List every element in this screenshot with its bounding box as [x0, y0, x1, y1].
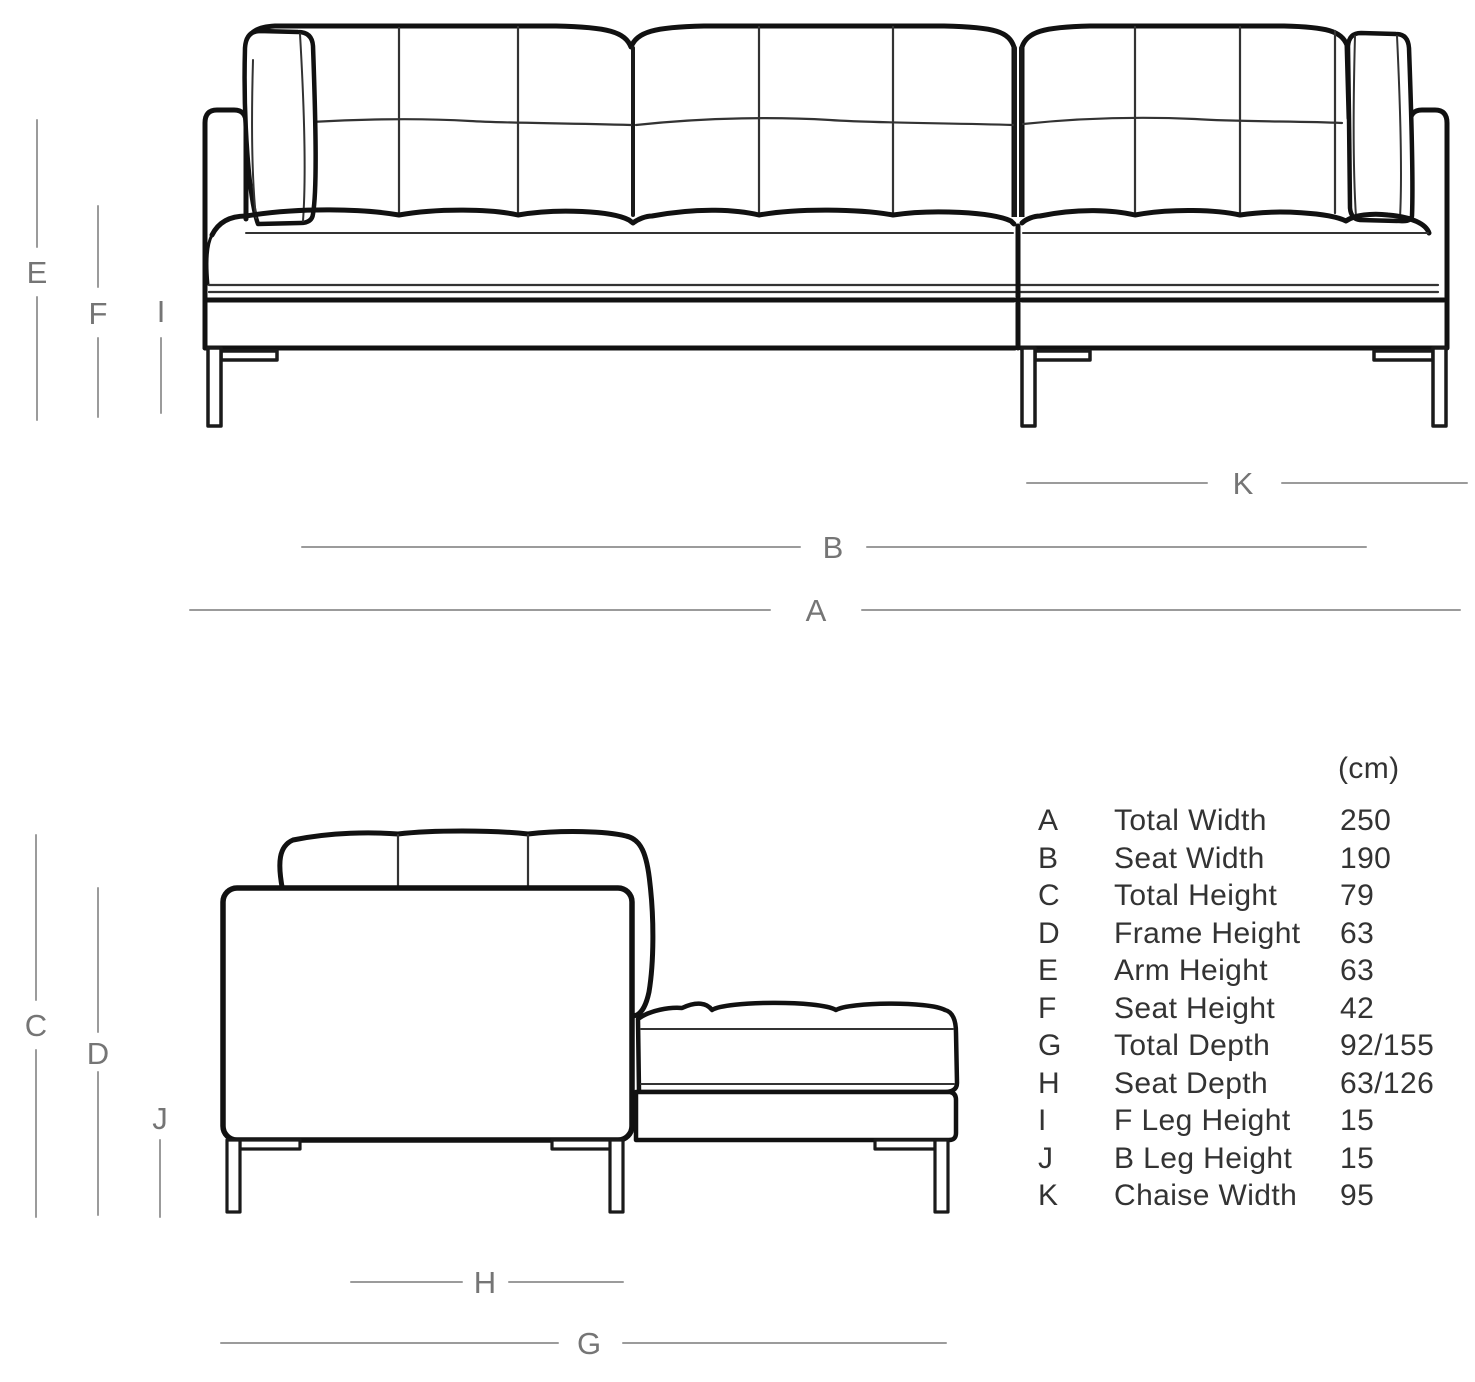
dimension-label-E: E [27, 255, 48, 290]
row-letter: C [1038, 877, 1114, 915]
row-letter: A [1038, 802, 1114, 840]
row-value: 63 [1340, 915, 1374, 953]
row-name: Total Width [1114, 802, 1340, 840]
row-letter: F [1038, 990, 1114, 1028]
table-row: F Seat Height 42 [1038, 990, 1434, 1028]
row-value: 63 [1340, 952, 1374, 990]
row-name: Seat Width [1114, 840, 1340, 878]
row-letter: I [1038, 1102, 1114, 1140]
dimension-label-A: A [806, 593, 827, 628]
table-row: A Total Width 250 [1038, 802, 1434, 840]
front-right-pillow [1348, 33, 1412, 221]
front-chaise-left-leg-bracket [1035, 351, 1090, 360]
side-back-leg-bracket [240, 1140, 300, 1149]
table-row: H Seat Depth 63/126 [1038, 1065, 1434, 1103]
front-back-outline [246, 26, 1349, 222]
dimensions-table: (cm) A Total Width 250 B Seat Width 190 … [1038, 750, 1434, 1215]
front-chaise-right-leg-bracket [1374, 351, 1433, 360]
dimension-label-B: B [823, 530, 844, 565]
row-value: 79 [1340, 877, 1374, 915]
sofa-dimension-diagram: E F I K B A C D J H G (cm) A Total Width… [0, 0, 1475, 1382]
front-chaise-left-leg [1022, 348, 1035, 426]
side-body-panel [223, 888, 632, 1140]
dimension-label-F: F [89, 296, 108, 331]
table-row: B Seat Width 190 [1038, 840, 1434, 878]
row-value: 250 [1340, 802, 1391, 840]
front-left-leg [208, 348, 221, 426]
row-letter: E [1038, 952, 1114, 990]
row-name: Total Height [1114, 877, 1340, 915]
sofa-side-view-drawing [223, 831, 957, 1212]
front-left-leg-bracket [221, 351, 277, 360]
side-front-leg-bracket [552, 1140, 612, 1149]
row-letter: G [1038, 1027, 1114, 1065]
row-name: Frame Height [1114, 915, 1340, 953]
row-letter: H [1038, 1065, 1114, 1103]
table-row: E Arm Height 63 [1038, 952, 1434, 990]
row-letter: B [1038, 840, 1114, 878]
front-section-boundaries [633, 48, 1021, 222]
row-letter: D [1038, 915, 1114, 953]
table-row: I F Leg Height 15 [1038, 1102, 1434, 1140]
table-row: K Chaise Width 95 [1038, 1177, 1434, 1215]
dimension-label-G: G [577, 1326, 601, 1361]
side-chaise-cushion [638, 1003, 957, 1092]
table-row: C Total Height 79 [1038, 877, 1434, 915]
side-back-leg [227, 1140, 240, 1212]
dimension-label-J: J [152, 1101, 168, 1136]
unit-header: (cm) [1038, 750, 1434, 788]
table-row: G Total Depth 92/155 [1038, 1027, 1434, 1065]
front-tuft-seam-horizontal [247, 118, 1342, 127]
row-value: 92/155 [1340, 1027, 1434, 1065]
row-name: Seat Depth [1114, 1065, 1340, 1103]
dimension-label-K: K [1233, 466, 1254, 501]
sofa-front-view-drawing [205, 26, 1447, 426]
row-letter: J [1038, 1140, 1114, 1178]
row-letter: K [1038, 1177, 1114, 1215]
table-row: D Frame Height 63 [1038, 915, 1434, 953]
row-name: Chaise Width [1114, 1177, 1340, 1215]
row-value: 190 [1340, 840, 1391, 878]
row-name: Seat Height [1114, 990, 1340, 1028]
row-value: 15 [1340, 1140, 1374, 1178]
dimension-label-H: H [474, 1265, 496, 1300]
row-name: F Leg Height [1114, 1102, 1340, 1140]
dimension-label-I: I [157, 294, 166, 329]
side-front-leg [610, 1140, 623, 1212]
row-value: 63/126 [1340, 1065, 1434, 1103]
front-legs [208, 348, 1446, 426]
row-value: 42 [1340, 990, 1374, 1028]
side-chaise-frame [636, 1092, 956, 1140]
row-name: Arm Height [1114, 952, 1340, 990]
front-seat-face [205, 217, 1447, 348]
row-value: 95 [1340, 1177, 1374, 1215]
row-name: B Leg Height [1114, 1140, 1340, 1178]
side-chaise-leg [935, 1140, 948, 1212]
dimension-label-D: D [87, 1036, 109, 1071]
table-row: J B Leg Height 15 [1038, 1140, 1434, 1178]
row-value: 15 [1340, 1102, 1374, 1140]
side-legs [227, 1140, 948, 1212]
front-chaise-right-leg [1433, 348, 1446, 426]
dimension-label-C: C [25, 1008, 47, 1043]
side-chaise-leg-bracket [875, 1140, 935, 1149]
row-name: Total Depth [1114, 1027, 1340, 1065]
